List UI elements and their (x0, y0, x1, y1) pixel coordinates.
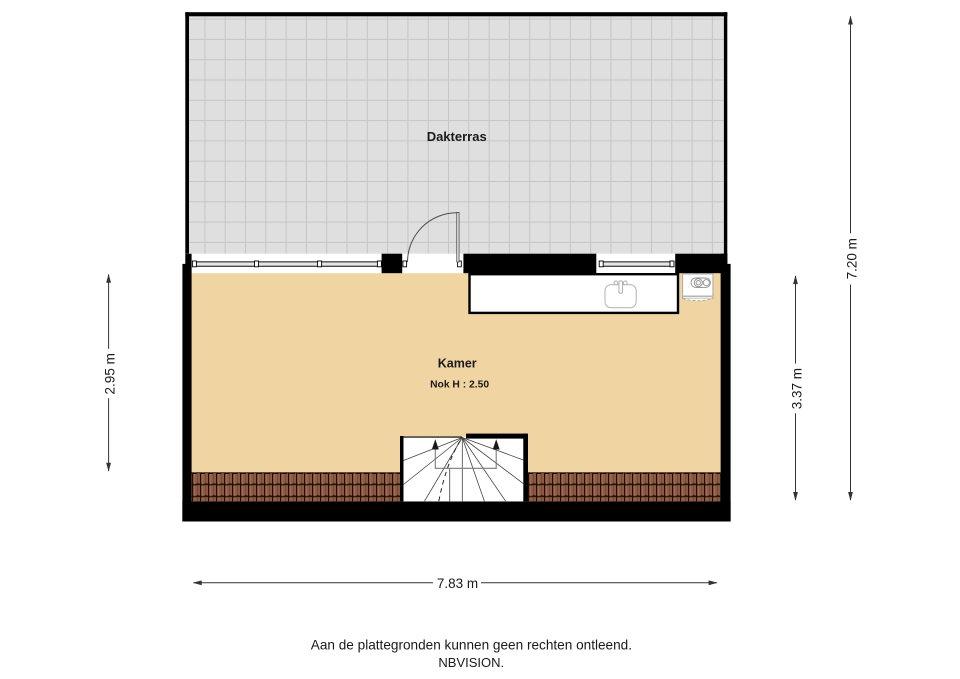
svg-text:2.95 m: 2.95 m (102, 353, 117, 394)
svg-text:7.20 m: 7.20 m (844, 238, 859, 279)
svg-text:Aan de plattegronden kunnen ge: Aan de plattegronden kunnen geen rechten… (311, 637, 632, 652)
svg-text:Kamer: Kamer (438, 357, 477, 371)
svg-text:Nok H : 2.50: Nok H : 2.50 (430, 379, 489, 390)
svg-text:Dakterras: Dakterras (427, 129, 487, 144)
svg-text:NBVISION.: NBVISION. (438, 655, 504, 670)
svg-text:7.83 m: 7.83 m (437, 576, 478, 591)
svg-text:3.37 m: 3.37 m (789, 368, 804, 409)
